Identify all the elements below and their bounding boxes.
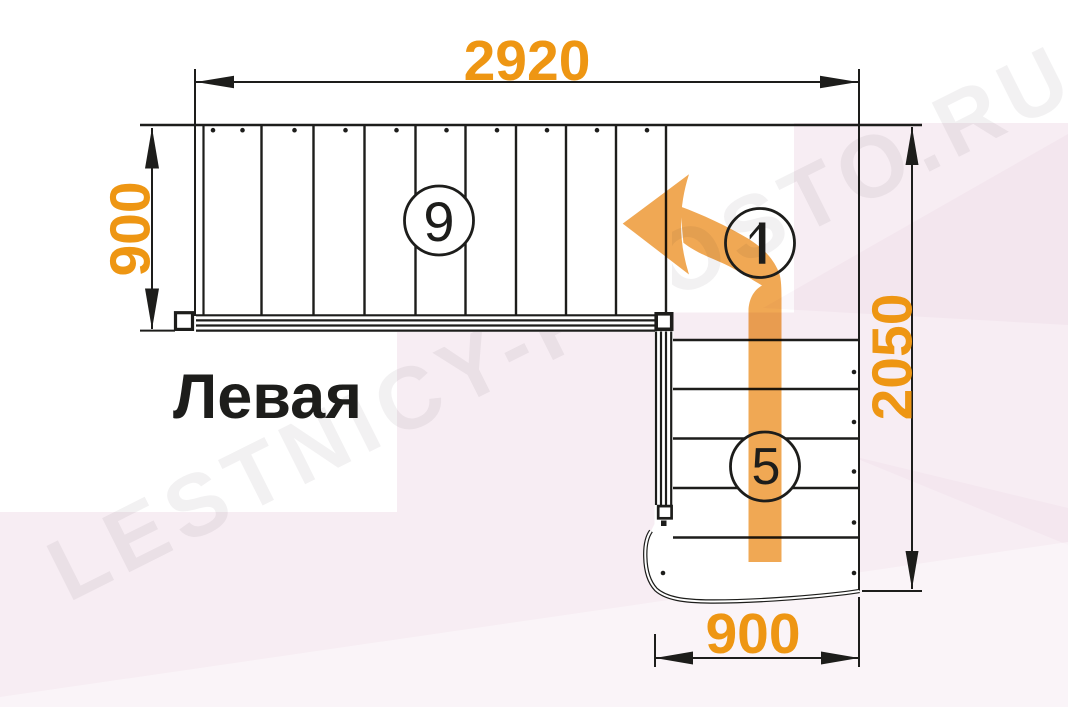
svg-text:2050: 2050: [861, 294, 925, 421]
svg-text:900: 900: [99, 181, 163, 276]
svg-text:5: 5: [752, 438, 781, 496]
svg-text:2920: 2920: [464, 29, 591, 93]
svg-text:900: 900: [705, 602, 800, 666]
svg-text:Левая: Левая: [173, 362, 362, 432]
svg-text:9: 9: [423, 190, 454, 253]
